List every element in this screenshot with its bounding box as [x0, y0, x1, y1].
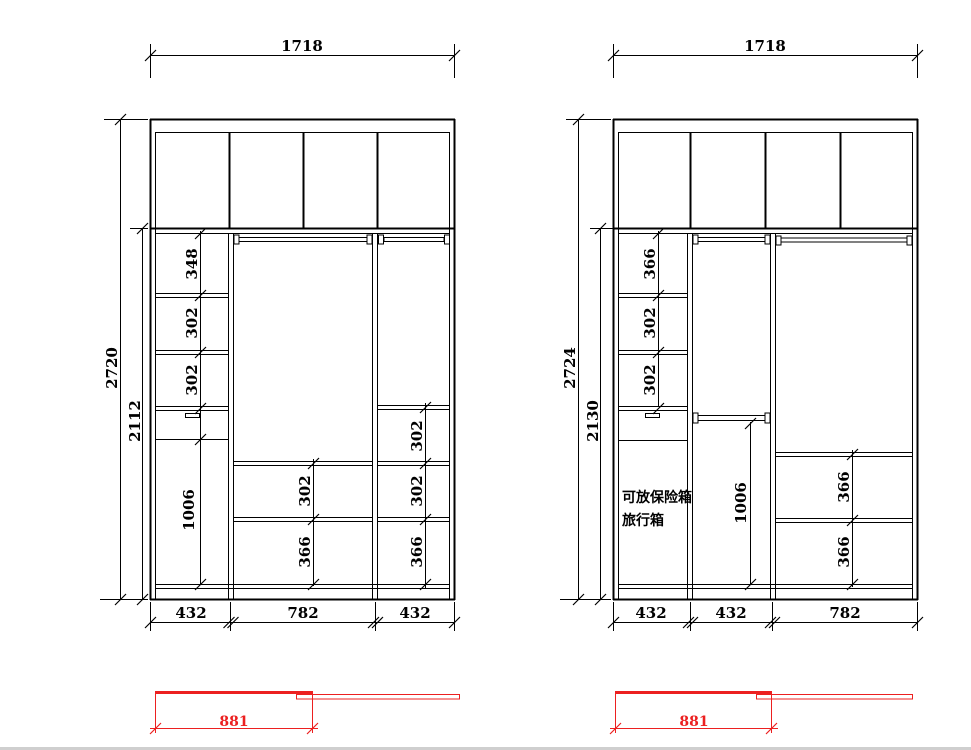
door-width-dim-label: 881 — [679, 714, 708, 730]
rear-door-panel — [757, 695, 913, 700]
inner-height-dim-label: 2130 — [584, 400, 602, 442]
width-dim-label: 1718 — [281, 37, 323, 55]
drawer-handle — [646, 414, 660, 418]
door-width-dim-label: 881 — [219, 714, 248, 730]
cad-canvas: 1718 2720 2112 348 302 302 1006 302 366 … — [0, 0, 971, 750]
dimension-labels: 1718 2724 2130 366 302 302 1006 366 366 … — [561, 37, 861, 622]
shelf-dim-label: 366 — [296, 536, 314, 567]
shelf-dim-label: 1006 — [180, 489, 198, 531]
cad-drawing-page: 1718 2720 2112 348 302 302 1006 302 366 … — [0, 0, 971, 750]
inner-height-dim-label: 2112 — [126, 400, 144, 442]
shelf-dim-label: 366 — [835, 471, 853, 502]
dimension-labels: 1718 2720 2112 348 302 302 1006 302 366 … — [103, 37, 431, 622]
bottom-dim-label: 432 — [399, 604, 430, 622]
dimension-ticks — [573, 50, 923, 628]
note-line-1: 可放保险箱 — [622, 489, 692, 506]
hanging-rods — [234, 235, 450, 244]
wardrobe-elevation-left: 1718 2720 2112 348 302 302 1006 302 366 … — [100, 37, 460, 631]
shelf-dim-label: 348 — [183, 248, 201, 279]
shelf-dim-label: 302 — [408, 420, 426, 451]
shelf-dim-label: 1006 — [732, 482, 750, 524]
overall-height-dim-label: 2720 — [103, 347, 121, 389]
sliding-door-plan-left: 881 — [150, 693, 460, 735]
bottom-dim-label: 782 — [829, 604, 860, 622]
width-dim-label: 1718 — [744, 37, 786, 55]
sliding-door-plan-right: 881 — [610, 693, 913, 735]
shelf-dim-label: 302 — [183, 307, 201, 338]
top-cabinet-door-dividers — [691, 133, 841, 228]
bottom-dim-label: 782 — [287, 604, 318, 622]
bottom-dim-label: 432 — [715, 604, 746, 622]
storage-note: 可放保险箱 旅行箱 — [622, 489, 692, 529]
shelf-dim-label: 302 — [408, 475, 426, 506]
wardrobe-elevation-right: 1718 2724 2130 366 302 302 1006 366 366 … — [560, 37, 923, 631]
top-cabinet-door-dividers — [230, 133, 378, 228]
bottom-dim-label: 432 — [635, 604, 666, 622]
shelf-dim-label: 366 — [641, 248, 659, 279]
bottom-dim-label: 432 — [175, 604, 206, 622]
drawer-handle — [186, 414, 200, 418]
shelf-dim-label: 302 — [183, 364, 201, 395]
shelf-dim-label: 366 — [835, 536, 853, 567]
overall-height-dim-label: 2724 — [561, 347, 579, 389]
shelf-dim-label: 302 — [296, 475, 314, 506]
note-line-2: 旅行箱 — [622, 512, 664, 529]
shelf-dim-label: 366 — [408, 536, 426, 567]
rear-door-panel — [297, 695, 460, 700]
shelf-dim-label: 302 — [641, 364, 659, 395]
hanging-rods — [693, 235, 912, 423]
shelf-dim-label: 302 — [641, 307, 659, 338]
